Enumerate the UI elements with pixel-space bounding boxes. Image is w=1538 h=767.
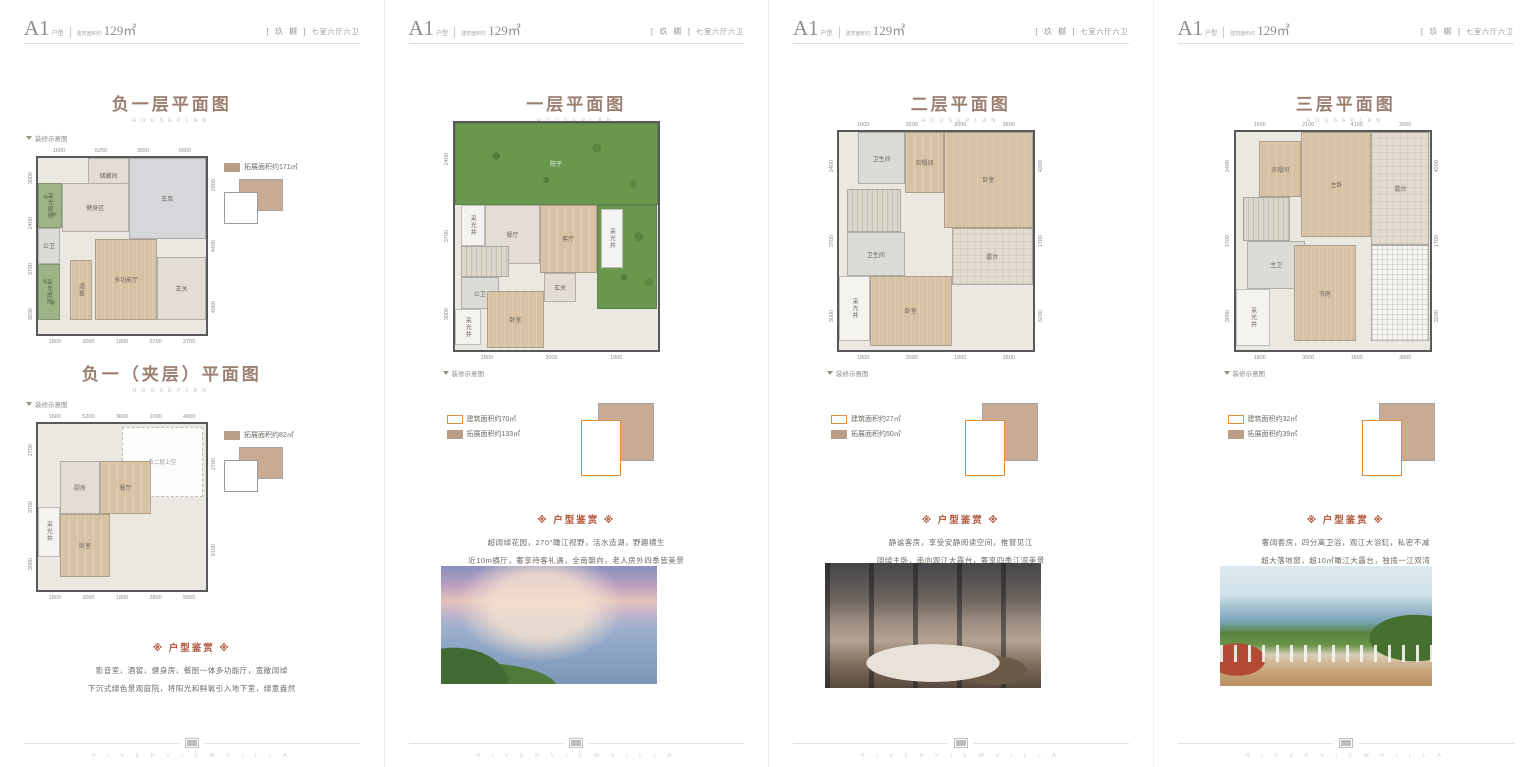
- built-area-value: 129㎡: [873, 20, 906, 39]
- built-area-prefix: 建筑面积约: [846, 32, 871, 39]
- unit-type-suffix: 户型: [52, 28, 64, 39]
- header-rule: [1178, 43, 1515, 44]
- room-label: 衣帽间: [915, 158, 933, 167]
- plan-dims-right: 420017003200: [1433, 129, 1442, 353]
- dimension-label: 3700: [829, 235, 835, 247]
- room-light: 采光井: [461, 205, 485, 246]
- dimension-label: 3800: [1399, 355, 1411, 361]
- section-title: 一层平面图 HOUSEPLAN: [385, 90, 769, 124]
- plan-dims-bottom: 1800300018003800: [839, 353, 1033, 362]
- dimension-label: 5600: [183, 595, 195, 601]
- section-title: 三层平面图 HOUSEPLAN: [1154, 90, 1538, 124]
- footer-english-text: R I V E R V I E W V I L L A: [1178, 753, 1515, 759]
- room-wood: 酒窖: [70, 260, 92, 320]
- room-wood: 主卧: [1301, 132, 1371, 237]
- panel-third-floor: A1 户型 建筑面积约 129㎡ [ 玖 樾 ] 七室六厅六卫 三层平面图 HO…: [1154, 0, 1538, 767]
- room-label: 采光井: [1248, 307, 1257, 328]
- divider: [1223, 27, 1224, 38]
- unit-type-suffix: 户型: [821, 28, 833, 39]
- dimension-label: 3600: [1003, 122, 1015, 128]
- panel-footer: R I V E R V I E W V I L L A: [24, 738, 360, 759]
- room-label: 负二层上空: [149, 458, 177, 466]
- panel-header: A1 户型 建筑面积约 129㎡ [ 玖 樾 ] 七室六厅六卫: [793, 18, 1129, 44]
- dimension-label: 2400: [829, 160, 835, 172]
- legend-item: 拓展面积约50㎡: [831, 429, 951, 439]
- appreciation-line: 超阔绰花园，270°瞰江视野，活水造湖，野趣横生: [397, 537, 757, 548]
- dimension-label: 3000: [906, 355, 918, 361]
- appreciation-title: ※ 户型鉴赏 ※: [12, 640, 372, 654]
- arrow-down-icon: [26, 136, 32, 140]
- dimension-label: 2700: [183, 339, 195, 345]
- plan-dims-left: 240037003000: [1224, 129, 1233, 353]
- footer-rule: [589, 743, 744, 744]
- section-title: 二层平面图 HOUSEPLAN: [769, 90, 1153, 124]
- unit-type-label: A1: [409, 18, 435, 39]
- houseplan-subtitle: HOUSEPLAN: [0, 118, 344, 124]
- dimension-label: 3000: [28, 558, 34, 570]
- room-paver: 露台: [1371, 132, 1429, 245]
- photo-river-view: [441, 566, 657, 684]
- room-label: 采光井: [463, 317, 472, 338]
- dimension-label: 4490: [211, 240, 217, 252]
- built-area-value: 129㎡: [104, 20, 137, 39]
- dimension-label: 1800: [116, 339, 128, 345]
- built-area-prefix: 建筑面积约: [1230, 32, 1255, 39]
- plan-middle: 240037003000院子采光井餐厅客厅采光井公卫玄关采光井卧室: [443, 120, 661, 353]
- appreciation-line: 超大落地窗，超10㎡瞰江大露台，独揽一江双湾: [1166, 555, 1527, 566]
- brochure-sheet: A1 户型 建筑面积约 129㎡ [ 玖 樾 ] 七室六厅六卫 负一层平面图 H…: [0, 0, 1538, 767]
- room-label: 采光井: [607, 228, 616, 249]
- room-wood: 多功能厅: [95, 239, 157, 320]
- dimension-label: 6700: [149, 339, 161, 345]
- floor-plan-canvas: 衣帽间主卧露台主卫采光井书房: [1234, 130, 1432, 352]
- appreciation-title: ※ 户型鉴赏 ※: [397, 512, 757, 526]
- plan-dims-top: 1600210041002600: [1236, 120, 1430, 129]
- room-label: 健身区: [86, 203, 104, 212]
- footer-rule: [409, 743, 564, 744]
- dimension-label: 3000: [28, 172, 34, 184]
- plan-dims-bottom: 18003000180067002700: [38, 337, 206, 346]
- plan-legend: 拓展面积约171㎡: [224, 162, 336, 224]
- brand-name: [ 玖 樾 ]: [651, 26, 692, 37]
- dimension-label: 2700: [28, 444, 34, 456]
- dimension-label: 2400: [28, 217, 34, 229]
- legend-mini-plan: [961, 400, 1039, 484]
- room-label: 卫生间: [873, 154, 891, 163]
- plan-dims-top: 1600320020003600: [839, 120, 1033, 129]
- legend-mini-plan: [577, 400, 655, 484]
- dimension-label: 1600: [53, 148, 65, 154]
- dimension-label: 4100: [1351, 122, 1363, 128]
- dimension-label: 1800: [954, 355, 966, 361]
- dimension-label: 5650: [179, 148, 191, 154]
- plan-dims-left: 3000240037003030: [26, 155, 35, 337]
- dimension-label: 1800: [1254, 355, 1266, 361]
- room-label: 公卫: [474, 289, 486, 298]
- plan-middle: 3000240037003030储藏间车库健身区采光庭院公卫采光庭院酒窖多功能厅…: [26, 155, 218, 337]
- dimension-label: 5200: [95, 148, 107, 154]
- houseplan-subtitle: HOUSEPLAN: [0, 388, 344, 394]
- unit-type-suffix: 户型: [1205, 28, 1217, 39]
- dimension-label: 3000: [82, 339, 94, 345]
- room-light: 采光井: [38, 507, 60, 557]
- plan-title: 负一层平面图: [0, 90, 344, 115]
- rooms-config: 七室六厅六卫: [312, 27, 360, 37]
- room-label: 露台: [986, 252, 998, 261]
- room-label: 采光庭院: [46, 193, 54, 219]
- room-label: 露台: [1394, 184, 1406, 193]
- room-wood: 书房: [1294, 245, 1356, 341]
- floor-plan-canvas: 储藏间车库健身区采光庭院公卫采光庭院酒窖多功能厅玄关: [36, 156, 208, 336]
- expand-area-swatch: [224, 431, 240, 440]
- room-label: 卫生间: [867, 250, 885, 259]
- dimension-label: 2400: [444, 153, 450, 165]
- decor-note: 装修示意图: [1224, 368, 1266, 378]
- appreciation-line: 下沉式绿色景观庭院，将阳光和鲜氧引入地下室，绿意盎然: [12, 683, 372, 694]
- room-tile: 厨房: [60, 461, 100, 514]
- dimension-label: 3000: [1302, 355, 1314, 361]
- built-area-value: 129㎡: [1257, 20, 1290, 39]
- dimension-label: 9100: [211, 544, 217, 556]
- footer-rule: [793, 743, 948, 744]
- section-title: 负一（夹层）平面图 HOUSEPLAN: [0, 360, 344, 394]
- dimension-label: 2100: [1302, 122, 1314, 128]
- room-label: 客厅: [562, 234, 574, 243]
- mini-build-shape: [1362, 420, 1402, 476]
- dimension-label: 3000: [444, 308, 450, 320]
- built-area-value: 129㎡: [488, 20, 521, 39]
- dimension-label: 2700: [211, 458, 217, 470]
- dimension-label: 3200: [1038, 310, 1044, 322]
- rooms-config: 七室六厅六卫: [1466, 27, 1514, 37]
- room-light: 采光井: [1236, 289, 1271, 346]
- expand-area-swatch: [831, 430, 847, 439]
- room-wood: 衣帽间: [905, 132, 944, 193]
- floor-plan-canvas: 负二层上空厨房餐厅采光井卧室: [36, 422, 208, 592]
- plan-dims-left: 240037003000: [827, 129, 836, 353]
- dimension-label: 3550: [137, 148, 149, 154]
- room-label: 主卫: [1270, 260, 1282, 269]
- legend-item: 建筑面积约27㎡: [831, 414, 951, 424]
- unit-type-label: A1: [1178, 18, 1204, 39]
- footer-rule: [1178, 743, 1333, 744]
- appreciation-block: ※ 户型鉴赏 ※ 奢阔套房，四分离卫浴，观江大浴缸，私密不减 超大落地窗，超10…: [1166, 512, 1527, 573]
- floor-plan-canvas: 院子采光井餐厅客厅采光井公卫玄关采光井卧室: [453, 121, 660, 352]
- dimension-label: 1800: [481, 355, 493, 361]
- dimension-label: 3000: [829, 310, 835, 322]
- dimension-label: 2600: [1399, 122, 1411, 128]
- legend-item: 拓展面积约82㎡: [224, 430, 336, 440]
- photo-bedroom-interior: [825, 563, 1041, 688]
- section-title: 负一层平面图 HOUSEPLAN: [0, 90, 344, 124]
- dimension-label: 1800: [49, 339, 61, 345]
- dimension-label: 1700: [1434, 235, 1440, 247]
- plan-legend: 建筑面积约32㎡ 拓展面积约39㎡: [1228, 414, 1348, 444]
- legend-item: 拓展面积约171㎡: [224, 162, 336, 172]
- dimension-label: 2400: [1225, 160, 1231, 172]
- room-label: 玄关: [176, 284, 188, 293]
- plan-middle: 240037003000衣帽间主卧露台主卫采光井书房420017003200: [1224, 129, 1442, 353]
- panel-first-floor: A1 户型 建筑面积约 129㎡ [ 玖 樾 ] 七室六厅六卫 一层平面图 HO…: [385, 0, 770, 767]
- panel-header: A1 户型 建筑面积约 129㎡ [ 玖 樾 ] 七室六厅六卫: [1178, 18, 1515, 44]
- dimension-label: 2000: [954, 122, 966, 128]
- dimension-label: 1800: [1351, 355, 1363, 361]
- plan-dims-bottom: 18003000180038005600: [38, 593, 206, 602]
- room-wood: 客厅: [540, 205, 597, 273]
- room-label: 衣帽间: [1271, 165, 1289, 174]
- dimension-label: 3000: [545, 355, 557, 361]
- appreciation-title: ※ 户型鉴赏 ※: [781, 512, 1141, 526]
- mini-build-shape: [224, 192, 258, 224]
- dimension-label: 3000: [1225, 310, 1231, 322]
- room-tile: 玄关: [544, 273, 576, 303]
- plan-dims-top: 16005200360010004600: [38, 412, 206, 421]
- arrow-down-icon: [1224, 371, 1230, 375]
- legend-item: 拓展面积约133㎡: [447, 429, 567, 439]
- build-area-swatch: [447, 415, 463, 424]
- brand-logo-icon: [1339, 738, 1353, 748]
- panel-second-floor: A1 户型 建筑面积约 129㎡ [ 玖 樾 ] 七室六厅六卫 二层平面图 HO…: [769, 0, 1154, 767]
- floor-plan-first: 240037003000院子采光井餐厅客厅采光井公卫玄关采光井卧室1800300…: [443, 120, 661, 362]
- footer-rule: [205, 743, 360, 744]
- room-bath: 公卫: [38, 228, 60, 263]
- plan-title: 二层平面图: [769, 90, 1153, 115]
- room-light: 采光井: [455, 309, 481, 345]
- room-bath: 卫生间: [858, 132, 905, 184]
- floor-plan-canvas: 卫生间衣帽间卧室露台卫生间采光井卧室: [837, 130, 1035, 352]
- room-court: 采光庭院: [38, 264, 60, 320]
- room-stairs: [461, 246, 510, 278]
- rooms-config: 七室六厅六卫: [1081, 27, 1129, 37]
- plan-middle: 240037003000卫生间衣帽间卧室露台卫生间采光井卧室4200170032…: [827, 129, 1045, 353]
- dimension-label: 3200: [906, 122, 918, 128]
- appreciation-title: ※ 户型鉴赏 ※: [1166, 512, 1527, 526]
- plan-dims-right: 27009100: [209, 421, 218, 593]
- brand-logo-icon: [185, 738, 199, 748]
- room-label: 采光井: [44, 521, 53, 542]
- panel-header: A1 户型 建筑面积约 129㎡ [ 玖 樾 ] 七室六厅六卫: [24, 18, 360, 44]
- dimension-label: 1600: [1254, 122, 1266, 128]
- arrow-down-icon: [443, 371, 449, 375]
- room-wood: 餐厅: [100, 461, 150, 514]
- room-label: 玄关: [554, 283, 566, 292]
- appreciation-line: 影音室、酒窖、健身房、餐厨一体多功能厅，宽敞阔绰: [12, 665, 372, 676]
- dimension-label: 4060: [211, 301, 217, 313]
- room-label: 院子: [550, 159, 562, 168]
- dimension-label: 3700: [28, 501, 34, 513]
- divider: [70, 27, 71, 38]
- dimension-label: 3600: [116, 414, 128, 420]
- room-court: 采光庭院: [38, 183, 62, 229]
- room-wood: 卧室: [870, 276, 951, 346]
- room-wood: 卧室: [60, 514, 110, 577]
- dimension-label: 3000: [82, 595, 94, 601]
- appreciation-block: ※ 户型鉴赏 ※ 超阔绰花园，270°瞰江视野，活水造湖，野趣横生 近10m横厅…: [397, 512, 757, 573]
- dimension-label: 1600: [49, 414, 61, 420]
- dimension-label: 1000: [149, 414, 161, 420]
- plan-title: 负一（夹层）平面图: [0, 360, 344, 385]
- legend-mini-plan: [224, 180, 282, 224]
- built-area-prefix: 建筑面积约: [77, 32, 102, 39]
- plan-dims-bottom: 180030001800: [455, 353, 649, 362]
- panel-header: A1 户型 建筑面积约 129㎡ [ 玖 樾 ] 七室六厅六卫: [409, 18, 745, 44]
- build-area-swatch: [1228, 415, 1244, 424]
- floor-plan-second: 1600320020003600240037003000卫生间衣帽间卧室露台卫生…: [827, 120, 1045, 362]
- legend-item: 建筑面积约32㎡: [1228, 414, 1348, 424]
- dimension-label: 1800: [857, 355, 869, 361]
- decor-note: 装修示意图: [827, 368, 869, 378]
- dimension-label: 3030: [28, 308, 34, 320]
- room-label: 卧室: [79, 541, 91, 550]
- appreciation-line: 静谧客房，享受安静阅读空间，推窗见江: [781, 537, 1141, 548]
- room-garage: 车库: [129, 158, 206, 239]
- plan-dims-right: 290044904060: [209, 155, 218, 337]
- dimension-label: 2900: [211, 179, 217, 191]
- dimension-label: 1700: [1038, 235, 1044, 247]
- mini-build-shape: [581, 420, 621, 476]
- unit-type-label: A1: [793, 18, 819, 39]
- header-rule: [793, 43, 1129, 44]
- footer-rule: [974, 743, 1129, 744]
- dimension-label: 4200: [1434, 160, 1440, 172]
- room-paver: 露台: [952, 228, 1033, 285]
- unit-type-suffix: 户型: [436, 28, 448, 39]
- brand-name: [ 玖 樾 ]: [266, 26, 307, 37]
- dimension-label: 4200: [1038, 160, 1044, 172]
- plan-dims-top: 1600520035505650: [38, 146, 206, 155]
- brand-logo-icon: [569, 738, 583, 748]
- room-wood: 卧室: [487, 291, 544, 348]
- dimension-label: 3700: [1225, 235, 1231, 247]
- plan-dims-right: 420017003200: [1036, 129, 1045, 353]
- expand-area-swatch: [447, 430, 463, 439]
- legend-mini-plan: [1358, 400, 1436, 484]
- panel-footer: R I V E R V I E W V I L L A: [409, 738, 745, 759]
- room-label: 卧室: [509, 315, 521, 324]
- divider: [839, 27, 840, 38]
- build-area-swatch: [831, 415, 847, 424]
- room-light: 采光井: [839, 276, 870, 341]
- plan-dims-left: 270037003000: [26, 421, 35, 593]
- room-stairs: [1243, 197, 1290, 241]
- panel-footer: R I V E R V I E W V I L L A: [793, 738, 1129, 759]
- rooms-config: 七室六厅六卫: [696, 27, 744, 37]
- dimension-label: 3700: [444, 230, 450, 242]
- header-rule: [24, 43, 360, 44]
- room-label: 采光庭院: [45, 279, 53, 305]
- brand-name: [ 玖 樾 ]: [1421, 26, 1462, 37]
- footer-rule: [24, 743, 179, 744]
- room-garden: 院子: [455, 123, 658, 205]
- room-label: 书房: [1319, 289, 1331, 298]
- room-wood: 卧室: [944, 132, 1033, 228]
- legend-mini-plan: [224, 448, 282, 492]
- arrow-down-icon: [827, 371, 833, 375]
- plan-legend: 建筑面积约70㎡ 拓展面积约133㎡: [447, 414, 567, 444]
- dimension-label: 3700: [28, 263, 34, 275]
- mini-build-shape: [224, 460, 258, 492]
- photo-terrace-lake-view: [1220, 566, 1432, 686]
- room-wood: 衣帽间: [1259, 141, 1302, 198]
- footer-english-text: R I V E R V I E W V I L L A: [409, 753, 745, 759]
- room-label: 餐厅: [119, 483, 131, 492]
- brand-name: [ 玖 樾 ]: [1035, 26, 1076, 37]
- room-label: 卧室: [905, 306, 917, 315]
- room-hatch: [1371, 245, 1429, 341]
- floor-plan-mezzanine: 16005200360010004600270037003000负二层上空厨房餐…: [26, 412, 218, 602]
- dimension-label: 1600: [857, 122, 869, 128]
- brand-logo-icon: [954, 738, 968, 748]
- floor-plan-basement: 16005200355056503000240037003030储藏间车库健身区…: [26, 146, 218, 346]
- plan-legend: 拓展面积约82㎡: [224, 430, 336, 492]
- divider: [454, 27, 455, 38]
- footer-rule: [1359, 743, 1514, 744]
- room-label: 公卫: [43, 241, 55, 250]
- decor-note: 装修示意图: [26, 399, 68, 409]
- dimension-label: 1800: [49, 595, 61, 601]
- room-tile: 玄关: [157, 257, 206, 320]
- room-label: 主卧: [1330, 180, 1342, 189]
- footer-english-text: R I V E R V I E W V I L L A: [24, 753, 360, 759]
- unit-type-label: A1: [24, 18, 50, 39]
- header-rule: [409, 43, 745, 44]
- built-area-prefix: 建筑面积约: [461, 32, 486, 39]
- room-label: 卧室: [982, 175, 994, 184]
- plan-title: 一层平面图: [385, 90, 769, 115]
- dimension-label: 1800: [116, 595, 128, 601]
- legend-item: 建筑面积约70㎡: [447, 414, 567, 424]
- dimension-label: 3200: [1434, 310, 1440, 322]
- room-label: 餐厅: [506, 230, 518, 239]
- room-bath: 卫生间: [847, 232, 905, 276]
- dimension-label: 5200: [82, 414, 94, 420]
- panel-footer: R I V E R V I E W V I L L A: [1178, 738, 1515, 759]
- room-label: 酒窖: [76, 283, 85, 297]
- expand-area-swatch: [224, 163, 240, 172]
- plan-middle: 270037003000负二层上空厨房餐厅采光井卧室27009100: [26, 421, 218, 593]
- room-label: 采光井: [468, 215, 477, 236]
- plan-legend: 建筑面积约27㎡ 拓展面积约50㎡: [831, 414, 951, 444]
- arrow-down-icon: [26, 402, 32, 406]
- room-label: 采光井: [850, 298, 859, 319]
- room-label: 储藏间: [100, 171, 118, 180]
- dimension-label: 1800: [610, 355, 622, 361]
- appreciation-line: 近10m横厅，奢享待客礼遇，全南朝向，老人房外四季皆美景: [397, 555, 757, 566]
- appreciation-line: 奢阔套房，四分离卫浴，观江大浴缸，私密不减: [1166, 537, 1527, 548]
- dimension-label: 3800: [1003, 355, 1015, 361]
- room-tile: 健身区: [62, 183, 129, 232]
- mini-build-shape: [965, 420, 1005, 476]
- room-label: 车库: [161, 194, 173, 203]
- plan-dims-bottom: 1800300018003800: [1236, 353, 1430, 362]
- room-light: 采光井: [601, 209, 623, 268]
- dimension-label: 3800: [149, 595, 161, 601]
- plan-title: 三层平面图: [1154, 90, 1538, 115]
- expand-area-swatch: [1228, 430, 1244, 439]
- dimension-label: 4600: [183, 414, 195, 420]
- panel-basement: A1 户型 建筑面积约 129㎡ [ 玖 樾 ] 七室六厅六卫 负一层平面图 H…: [0, 0, 385, 767]
- floor-plan-third: 1600210041002600240037003000衣帽间主卧露台主卫采光井…: [1224, 120, 1442, 362]
- decor-note: 装修示意图: [26, 133, 68, 143]
- room-label: 厨房: [74, 483, 86, 492]
- appreciation-block: ※ 户型鉴赏 ※ 影音室、酒窖、健身房、餐厨一体多功能厅，宽敞阔绰 下沉式绿色景…: [12, 640, 372, 701]
- decor-note: 装修示意图: [443, 368, 485, 378]
- legend-item: 拓展面积约39㎡: [1228, 429, 1348, 439]
- footer-english-text: R I V E R V I E W V I L L A: [793, 753, 1129, 759]
- plan-dims-left: 240037003000: [443, 120, 452, 353]
- room-stairs: [847, 189, 901, 233]
- room-label: 多功能厅: [114, 275, 138, 284]
